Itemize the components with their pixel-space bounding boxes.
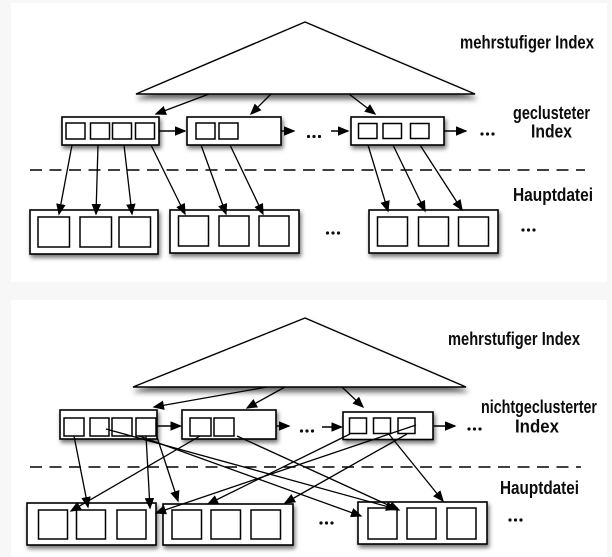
svg-text:Hauptdatei: Hauptdatei xyxy=(500,477,579,498)
svg-text:mehrstufiger Index: mehrstufiger Index xyxy=(460,32,595,53)
svg-text:Index: Index xyxy=(515,416,560,437)
svg-text:nichtgeclusterter: nichtgeclusterter xyxy=(481,396,597,417)
svg-text:mehrstufiger Index: mehrstufiger Index xyxy=(448,328,581,349)
svg-text:Hauptdatei: Hauptdatei xyxy=(513,184,593,205)
svg-text:Index: Index xyxy=(531,121,573,142)
